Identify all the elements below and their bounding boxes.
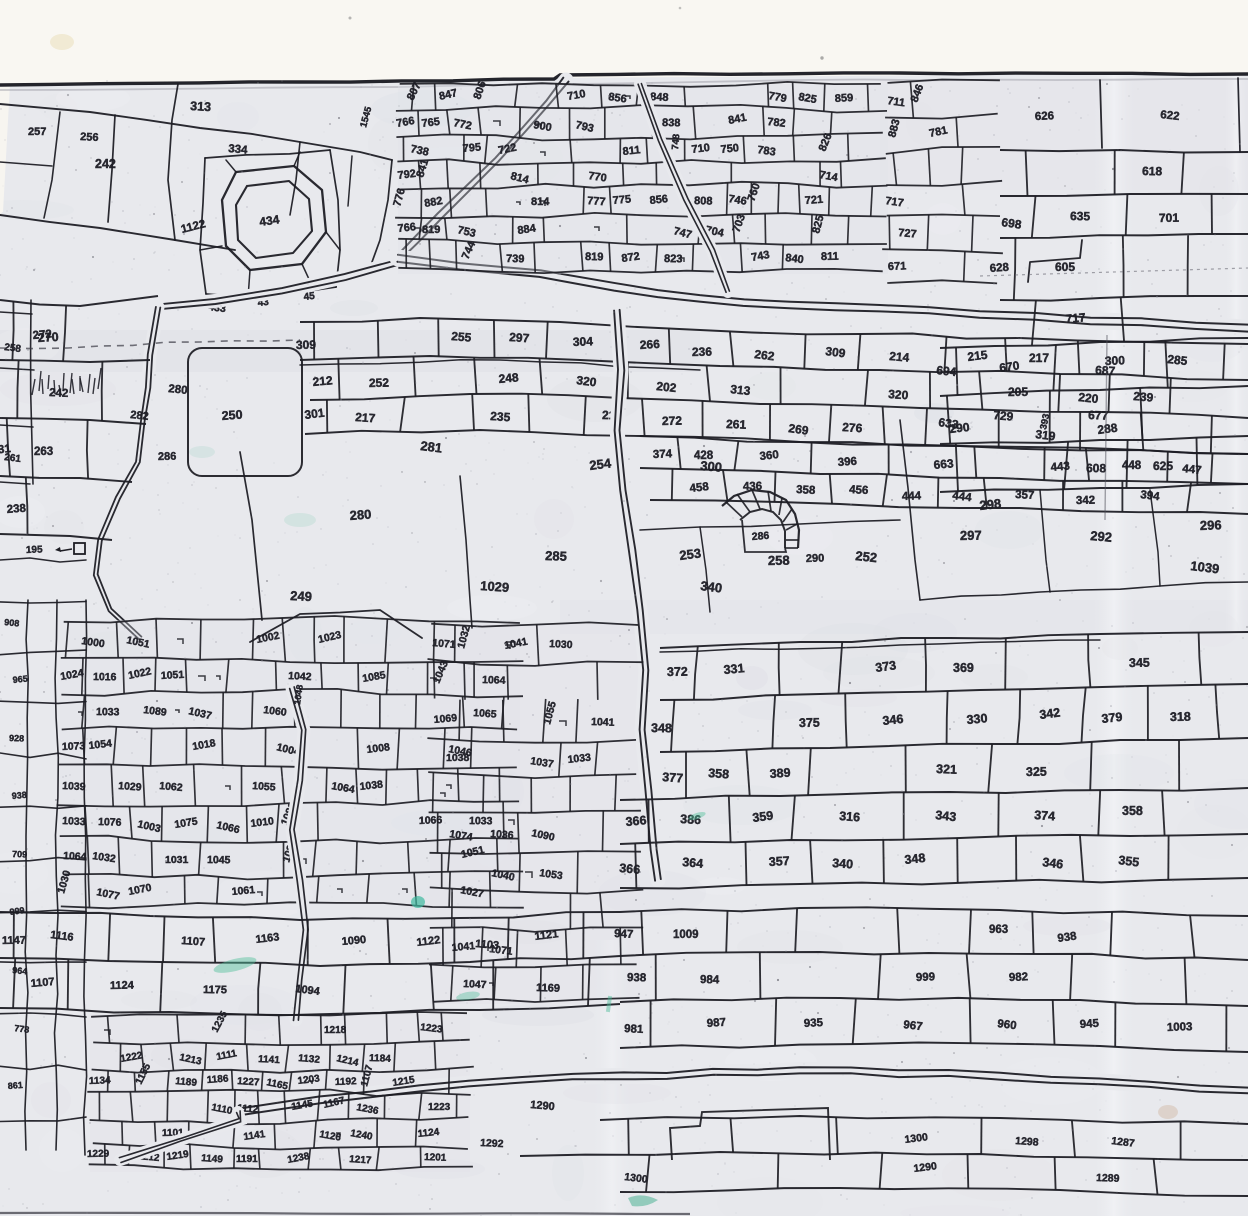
svg-text:448: 448: [1122, 460, 1142, 472]
svg-text:635: 635: [1070, 209, 1091, 223]
svg-text:963: 963: [989, 924, 1008, 936]
svg-text:739: 739: [506, 253, 525, 265]
svg-text:999: 999: [9, 905, 25, 917]
svg-text:938: 938: [11, 790, 27, 801]
svg-text:348: 348: [904, 851, 926, 867]
svg-text:1189: 1189: [175, 1076, 198, 1089]
svg-text:1047: 1047: [463, 978, 487, 991]
svg-text:262: 262: [754, 347, 776, 363]
svg-text:1298: 1298: [1015, 1135, 1039, 1149]
svg-text:1064: 1064: [63, 850, 87, 863]
svg-text:296: 296: [1200, 517, 1222, 533]
svg-text:1033: 1033: [96, 706, 120, 718]
svg-text:1029: 1029: [480, 578, 510, 595]
svg-text:372: 372: [667, 665, 688, 679]
svg-text:808: 808: [694, 195, 713, 208]
svg-text:1064: 1064: [482, 674, 506, 687]
svg-text:286: 286: [158, 451, 177, 463]
svg-text:248: 248: [498, 370, 519, 386]
svg-text:819: 819: [422, 224, 440, 236]
svg-text:316: 316: [839, 809, 861, 824]
svg-text:359: 359: [752, 809, 774, 825]
svg-text:280: 280: [168, 383, 188, 397]
svg-text:266: 266: [639, 337, 660, 352]
svg-text:357: 357: [768, 854, 790, 869]
svg-text:235: 235: [490, 409, 511, 424]
svg-text:345: 345: [1129, 656, 1150, 670]
svg-text:205: 205: [1008, 385, 1028, 399]
svg-text:1184: 1184: [369, 1053, 392, 1065]
svg-text:309: 309: [825, 344, 847, 360]
svg-text:626: 626: [1035, 110, 1055, 123]
svg-text:1073: 1073: [62, 740, 86, 753]
svg-text:908: 908: [4, 617, 20, 629]
svg-text:618: 618: [1142, 164, 1163, 178]
svg-text:605: 605: [1055, 260, 1075, 274]
svg-text:928: 928: [9, 733, 24, 744]
svg-text:967: 967: [903, 1019, 924, 1033]
svg-text:1107: 1107: [30, 976, 55, 990]
svg-text:288: 288: [1097, 421, 1119, 437]
svg-text:313: 313: [190, 99, 212, 114]
svg-text:396: 396: [837, 456, 857, 469]
svg-text:236: 236: [692, 345, 713, 359]
svg-text:364: 364: [682, 855, 704, 871]
svg-text:840: 840: [785, 252, 805, 266]
svg-text:709: 709: [12, 849, 27, 860]
svg-text:214: 214: [889, 349, 910, 365]
svg-text:819: 819: [585, 251, 604, 263]
svg-text:320: 320: [888, 387, 909, 402]
svg-text:856: 856: [608, 91, 628, 105]
svg-text:250: 250: [221, 408, 243, 423]
svg-text:434: 434: [258, 212, 280, 229]
svg-text:269: 269: [788, 421, 810, 438]
svg-text:710: 710: [691, 142, 711, 156]
svg-text:285: 285: [545, 548, 567, 564]
svg-text:1218: 1218: [324, 1025, 347, 1036]
svg-text:1033: 1033: [567, 752, 592, 766]
svg-text:195: 195: [26, 544, 43, 556]
svg-text:292: 292: [1090, 528, 1113, 545]
svg-text:1038: 1038: [446, 752, 470, 764]
svg-text:447: 447: [1182, 463, 1202, 477]
svg-text:313: 313: [730, 382, 752, 398]
svg-text:1033: 1033: [62, 815, 86, 828]
svg-text:238: 238: [6, 503, 27, 516]
svg-text:1149: 1149: [201, 1153, 224, 1166]
svg-text:1003: 1003: [1167, 1021, 1193, 1034]
svg-text:1186: 1186: [206, 1073, 229, 1086]
svg-text:1227: 1227: [237, 1076, 260, 1089]
svg-text:297: 297: [509, 330, 530, 345]
svg-text:811: 811: [821, 251, 839, 263]
svg-text:377: 377: [662, 770, 684, 785]
svg-text:217: 217: [1029, 351, 1049, 365]
svg-text:1029: 1029: [118, 780, 142, 794]
svg-text:355: 355: [1118, 853, 1140, 869]
svg-text:318: 318: [1170, 710, 1191, 724]
svg-text:663: 663: [933, 456, 954, 472]
svg-text:782: 782: [767, 116, 787, 130]
svg-text:1039: 1039: [62, 780, 86, 793]
svg-text:1191: 1191: [236, 1154, 258, 1165]
svg-text:215: 215: [967, 348, 989, 364]
svg-text:1289: 1289: [1096, 1172, 1120, 1185]
svg-text:212: 212: [312, 373, 333, 389]
svg-text:1045: 1045: [207, 854, 231, 866]
svg-text:625: 625: [1153, 459, 1173, 473]
svg-text:1042: 1042: [288, 670, 312, 683]
svg-text:220: 220: [1078, 390, 1100, 406]
svg-text:261: 261: [4, 452, 22, 465]
svg-text:320: 320: [576, 373, 598, 389]
svg-text:321: 321: [936, 762, 957, 777]
svg-text:290: 290: [806, 552, 825, 565]
svg-text:1290: 1290: [530, 1099, 555, 1113]
svg-text:727: 727: [898, 227, 917, 241]
svg-text:859: 859: [835, 92, 854, 105]
svg-text:1229: 1229: [87, 1149, 110, 1160]
svg-text:628: 628: [989, 262, 1010, 275]
svg-text:1016: 1016: [93, 671, 117, 683]
svg-text:775: 775: [612, 193, 631, 207]
svg-text:717: 717: [1065, 310, 1086, 326]
svg-text:838: 838: [662, 117, 681, 129]
svg-text:276: 276: [842, 420, 863, 435]
svg-text:389: 389: [769, 766, 791, 781]
svg-text:340: 340: [700, 578, 723, 596]
svg-text:698: 698: [1001, 215, 1023, 232]
svg-text:872: 872: [621, 251, 641, 265]
svg-text:297: 297: [960, 528, 982, 543]
svg-text:285: 285: [1167, 352, 1189, 368]
svg-text:984: 984: [700, 974, 720, 986]
svg-text:945: 945: [1079, 1018, 1100, 1031]
svg-text:346: 346: [1042, 855, 1064, 871]
svg-text:374: 374: [653, 448, 673, 461]
svg-text:947: 947: [614, 928, 634, 941]
svg-text:256: 256: [80, 131, 99, 144]
svg-text:783: 783: [757, 144, 777, 158]
svg-text:814: 814: [531, 196, 550, 208]
svg-text:1038: 1038: [359, 779, 384, 793]
svg-text:369: 369: [953, 661, 974, 675]
svg-text:1051: 1051: [161, 669, 185, 682]
svg-text:254: 254: [589, 455, 613, 473]
svg-text:346: 346: [882, 712, 904, 728]
svg-text:290: 290: [949, 420, 971, 436]
svg-text:1103: 1103: [475, 938, 500, 952]
svg-text:748: 748: [670, 134, 682, 151]
svg-text:717: 717: [885, 195, 905, 209]
svg-text:360: 360: [759, 449, 779, 463]
svg-text:286: 286: [751, 530, 769, 543]
svg-text:1069: 1069: [433, 712, 457, 726]
svg-text:1141: 1141: [258, 1054, 281, 1066]
svg-text:300: 300: [700, 458, 723, 475]
svg-text:856: 856: [649, 193, 669, 207]
svg-text:257: 257: [28, 126, 46, 138]
svg-text:622: 622: [1160, 109, 1180, 123]
svg-text:750: 750: [720, 142, 740, 156]
svg-text:342: 342: [1076, 495, 1095, 507]
svg-text:777: 777: [587, 195, 606, 208]
svg-text:1147: 1147: [2, 935, 26, 947]
svg-text:282: 282: [130, 409, 150, 423]
svg-text:861: 861: [7, 1080, 23, 1091]
svg-text:330: 330: [966, 711, 988, 727]
svg-text:1107: 1107: [181, 935, 206, 949]
svg-text:444: 444: [952, 490, 973, 504]
svg-text:340: 340: [832, 856, 854, 871]
svg-text:373: 373: [874, 658, 897, 675]
svg-text:721: 721: [804, 194, 823, 207]
svg-text:202: 202: [656, 379, 678, 395]
svg-text:358: 358: [796, 484, 816, 497]
svg-text:1132: 1132: [298, 1053, 321, 1066]
svg-text:272: 272: [32, 328, 52, 342]
svg-text:938: 938: [627, 972, 647, 984]
svg-text:1036: 1036: [490, 828, 514, 842]
svg-text:766: 766: [397, 221, 417, 235]
svg-text:280: 280: [349, 507, 372, 523]
svg-text:239: 239: [1133, 389, 1154, 405]
svg-text:823: 823: [664, 253, 683, 265]
svg-text:443: 443: [1050, 460, 1070, 474]
svg-text:342: 342: [1039, 706, 1061, 722]
svg-text:253: 253: [679, 545, 702, 563]
svg-text:458: 458: [689, 481, 710, 495]
svg-text:249: 249: [290, 588, 312, 604]
svg-text:358: 358: [708, 766, 730, 781]
svg-text:298: 298: [979, 496, 1002, 513]
svg-text:456: 456: [849, 484, 869, 497]
svg-text:325: 325: [1026, 765, 1047, 779]
svg-text:1292: 1292: [480, 1137, 504, 1150]
svg-text:217: 217: [355, 410, 376, 425]
svg-text:1169: 1169: [536, 982, 560, 995]
svg-text:770: 770: [588, 170, 608, 184]
svg-text:1065: 1065: [473, 707, 497, 721]
svg-text:263: 263: [34, 446, 53, 458]
svg-text:300: 300: [1105, 353, 1126, 368]
svg-text:960: 960: [997, 1018, 1018, 1032]
svg-text:252: 252: [855, 548, 878, 565]
svg-text:1062: 1062: [159, 780, 183, 794]
svg-text:348: 348: [651, 721, 672, 735]
svg-text:281: 281: [420, 438, 443, 456]
svg-text:242: 242: [49, 387, 69, 400]
svg-text:671: 671: [888, 260, 907, 273]
svg-text:1033: 1033: [469, 815, 493, 827]
svg-text:379: 379: [1101, 710, 1123, 726]
svg-text:1124: 1124: [110, 980, 135, 992]
svg-text:1124: 1124: [417, 1127, 440, 1140]
svg-text:252: 252: [369, 376, 390, 390]
svg-text:343: 343: [935, 808, 957, 824]
svg-text:981: 981: [624, 1023, 644, 1036]
svg-text:987: 987: [706, 1017, 726, 1030]
svg-text:1071: 1071: [432, 637, 456, 651]
svg-text:375: 375: [799, 716, 820, 730]
svg-text:1175: 1175: [203, 984, 227, 996]
svg-text:982: 982: [1009, 971, 1029, 984]
svg-text:242: 242: [95, 157, 116, 171]
svg-text:1076: 1076: [98, 816, 122, 829]
svg-text:811: 811: [622, 144, 641, 158]
svg-text:331: 331: [723, 661, 745, 677]
svg-text:1066: 1066: [419, 814, 443, 827]
svg-text:1201: 1201: [424, 1152, 447, 1164]
svg-text:778: 778: [14, 1023, 30, 1035]
svg-text:366: 366: [625, 813, 647, 829]
svg-text:965: 965: [12, 673, 28, 685]
svg-text:1030: 1030: [549, 638, 573, 651]
svg-text:701: 701: [1159, 211, 1180, 225]
svg-text:1054: 1054: [88, 738, 113, 752]
svg-text:258: 258: [768, 553, 790, 568]
svg-text:1090: 1090: [341, 934, 366, 948]
svg-text:1192: 1192: [335, 1076, 358, 1088]
svg-text:711: 711: [887, 95, 906, 109]
svg-text:366: 366: [619, 861, 641, 877]
svg-text:765: 765: [421, 116, 441, 130]
svg-text:357: 357: [1015, 489, 1035, 502]
svg-text:1031: 1031: [165, 854, 189, 866]
svg-text:255: 255: [451, 329, 472, 345]
svg-text:444: 444: [902, 490, 922, 503]
svg-text:1223: 1223: [428, 1102, 451, 1113]
svg-text:1041: 1041: [591, 716, 615, 729]
svg-text:1134: 1134: [89, 1075, 112, 1087]
svg-text:1055: 1055: [252, 780, 276, 794]
svg-text:1061: 1061: [231, 884, 255, 898]
svg-text:272: 272: [662, 414, 683, 428]
svg-text:1009: 1009: [673, 929, 699, 941]
svg-text:795: 795: [462, 141, 481, 155]
svg-text:358: 358: [1122, 804, 1143, 818]
svg-text:999: 999: [916, 971, 936, 984]
svg-text:935: 935: [804, 1017, 824, 1030]
svg-text:374: 374: [1034, 808, 1056, 823]
svg-text:261: 261: [726, 417, 747, 432]
svg-text:304: 304: [573, 334, 594, 349]
